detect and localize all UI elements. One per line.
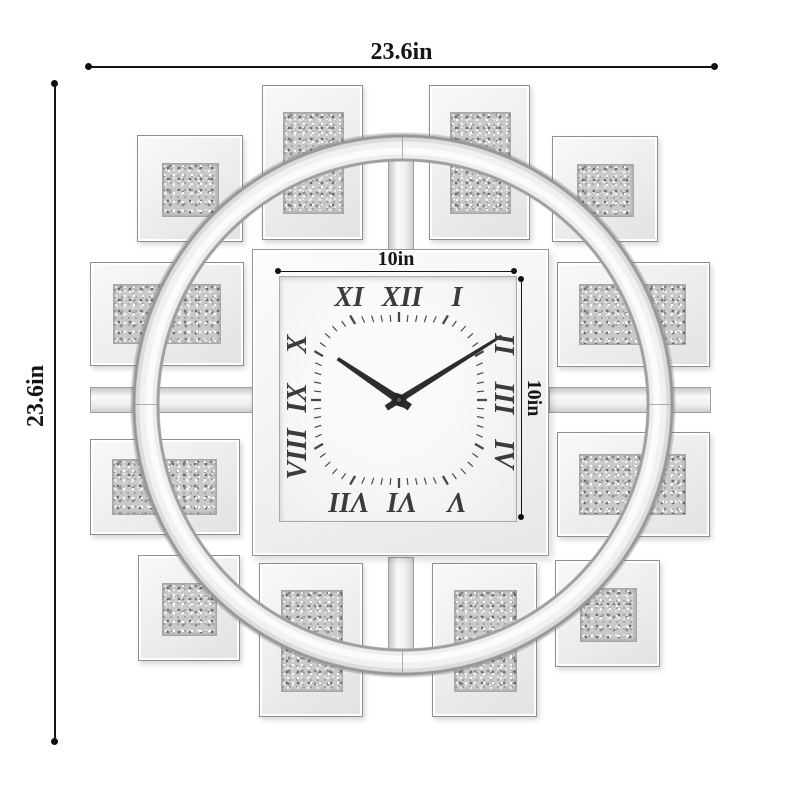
product-dimension-image: XIXIIIIIIIIIVVVIVIIVIIIIXX 23.6in 23.6in… [0, 0, 800, 800]
dimension-endpoint-dot [51, 738, 58, 745]
roman-numeral: III [489, 382, 517, 415]
dimension-line-face-height [521, 279, 522, 517]
clock-face: XIXIIIIIIIIIVVVIVIIVIIIIXX [279, 276, 517, 522]
roman-numeral: X [284, 335, 312, 354]
roman-numeral: VI [387, 487, 417, 515]
crushed-diamond-panel [162, 163, 219, 217]
dimension-endpoint-dot [51, 80, 58, 87]
roman-numeral: XII [382, 284, 422, 312]
roman-numeral: IV [489, 439, 517, 469]
roman-numeral: I [452, 284, 463, 312]
dimension-endpoint-dot [711, 63, 718, 70]
wall-clock: XIXIIIIIIIIIVVVIVIIVIIIIXX [0, 0, 800, 800]
dimension-line-height [54, 83, 56, 741]
overall-width-label: 23.6in [89, 40, 714, 64]
face-height-label: 10in [524, 380, 544, 417]
ring-seam [402, 134, 403, 159]
roman-numeral: XI [334, 284, 364, 312]
roman-numeral: IX [284, 383, 312, 413]
dimension-line-face-width [278, 271, 514, 272]
ring-seam [132, 404, 157, 405]
roman-numeral: VII [329, 487, 369, 515]
face-width-label: 10in [278, 249, 514, 269]
dimension-endpoint-dot [518, 276, 524, 282]
overall-height-label: 23.6in [24, 365, 48, 427]
ring-seam [402, 651, 403, 676]
ring-seam [649, 404, 674, 405]
roman-numeral: V [448, 487, 467, 515]
dimension-endpoint-dot [85, 63, 92, 70]
dimension-line-width [89, 66, 714, 68]
roman-numeral: II [489, 333, 517, 355]
dimension-endpoint-dot [518, 514, 524, 520]
roman-numeral: VIII [284, 428, 312, 479]
